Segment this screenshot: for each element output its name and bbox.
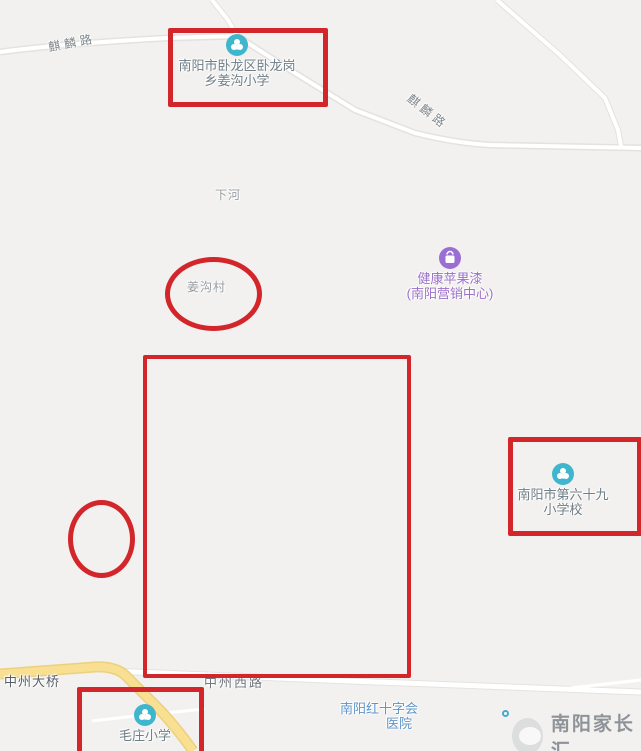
hospital-poi-dot-icon[interactable] bbox=[502, 710, 509, 717]
poi-label-line2: (南阳营销中心) bbox=[407, 286, 494, 301]
annotation-rect-maozhuang-school bbox=[77, 687, 204, 751]
shopping-bag-icon[interactable] bbox=[439, 247, 461, 269]
poi-red-cross-hospital-label[interactable]: 南阳红十字会 医院 bbox=[340, 701, 418, 731]
poi-label-line1: 健康苹果漆 bbox=[407, 271, 494, 286]
road-northeast bbox=[497, 0, 621, 146]
watermark: 南阳家长汇 bbox=[512, 709, 641, 751]
annotation-rect-jianggou-school bbox=[168, 28, 328, 107]
poi-label-line2: 医院 bbox=[340, 716, 418, 731]
map-canvas[interactable]: 麒麟路 麒麟路 中州大桥 中州西路 下河 姜沟村 南阳市卧龙区卧龙岗 乡姜沟小学… bbox=[0, 0, 641, 751]
road-northeast-casing bbox=[497, 0, 621, 146]
annotation-rect-school-69 bbox=[508, 437, 641, 536]
area-label-xiahe: 下河 bbox=[215, 186, 241, 203]
watermark-logo-icon bbox=[512, 718, 543, 751]
road-branch-east bbox=[570, 680, 641, 688]
poi-label-line1: 南阳红十字会 bbox=[340, 701, 418, 716]
poi-apple-paint[interactable]: 健康苹果漆 (南阳营销中心) bbox=[380, 247, 520, 301]
watermark-text: 南阳家长汇 bbox=[551, 709, 641, 751]
annotation-ellipse-jianggou-village bbox=[165, 257, 262, 331]
annotation-rect-large-area bbox=[143, 355, 411, 678]
road-label-zhongzhou-bridge: 中州大桥 bbox=[4, 671, 60, 690]
annotation-ellipse-small-left bbox=[68, 500, 135, 578]
